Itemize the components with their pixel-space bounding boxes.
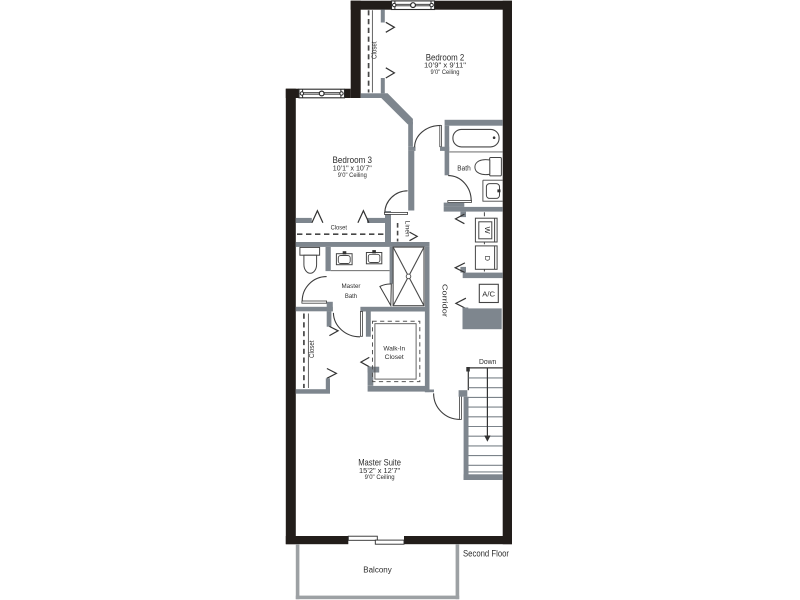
svg-text:Closet: Closet [331,224,348,231]
svg-text:A/C: A/C [482,292,495,299]
svg-text:Master: Master [342,283,362,290]
svg-text:Closet: Closet [307,340,316,358]
svg-text:Second Floor: Second Floor [463,548,509,558]
svg-text:Closet: Closet [385,354,404,361]
svg-text:Bath: Bath [457,165,470,172]
svg-text:Balcony: Balcony [363,566,391,575]
svg-text:Walk-In: Walk-In [383,345,405,352]
svg-text:10’1" x 10’7": 10’1" x 10’7" [333,164,372,173]
svg-text:9’0" Ceiling: 9’0" Ceiling [338,172,367,179]
svg-text:9’0" Ceiling: 9’0" Ceiling [365,474,395,481]
svg-text:Closet: Closet [370,41,379,59]
svg-text:9’0" Ceiling: 9’0" Ceiling [431,69,460,76]
svg-text:Corridor: Corridor [441,284,450,318]
svg-text:W: W [483,227,492,234]
svg-text:Bath: Bath [345,293,357,300]
svg-text:Linen: Linen [404,221,411,238]
svg-text:D: D [483,256,492,261]
svg-text:Down: Down [479,357,496,366]
